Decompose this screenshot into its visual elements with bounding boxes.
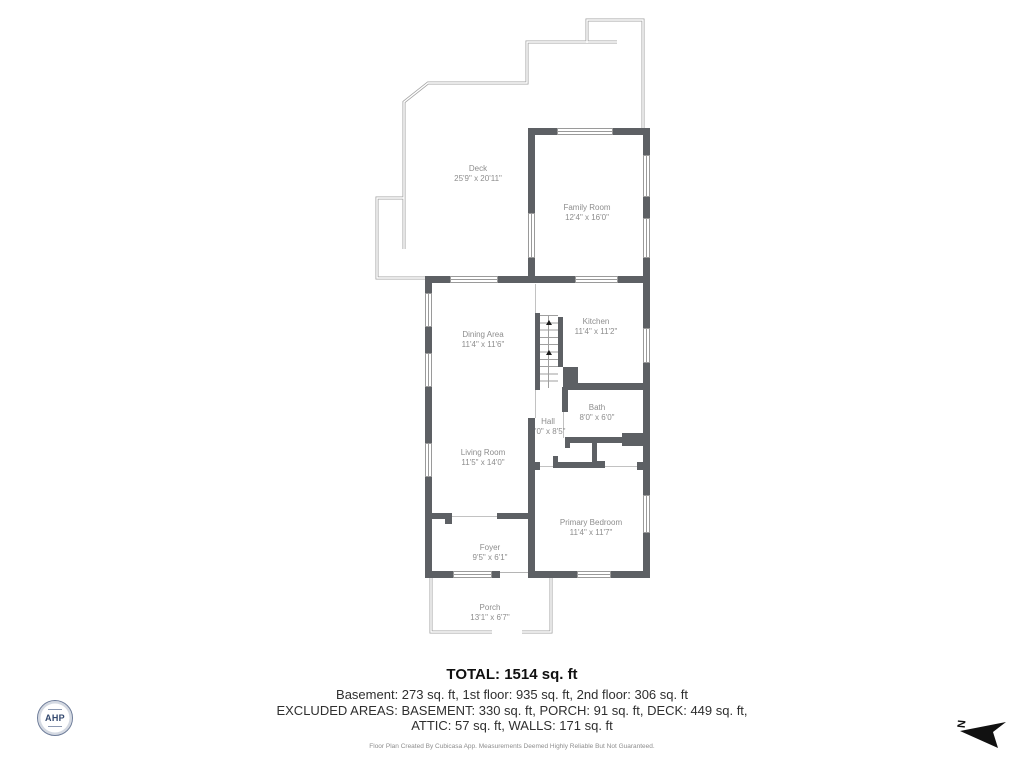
room-dims: 12'4" x 16'0" xyxy=(563,213,610,223)
room-label-deck: Deck 25'9" x 20'11" xyxy=(454,164,502,184)
wall-door-jamb xyxy=(445,513,452,524)
room-name: Dining Area xyxy=(462,330,505,340)
window xyxy=(577,571,611,578)
room-dims: 11'4" x 11'2" xyxy=(575,327,618,337)
window xyxy=(425,293,432,327)
room-separator-line xyxy=(535,284,536,313)
room-name: Kitchen xyxy=(575,317,618,327)
room-label-primary-bedroom: Primary Bedroom 11'4" x 11'7" xyxy=(560,518,622,538)
room-name: Primary Bedroom xyxy=(560,518,622,528)
wall xyxy=(553,462,597,468)
window xyxy=(425,353,432,387)
room-label-bath: Bath 8'0" x 6'0" xyxy=(580,403,615,423)
room-name: Foyer xyxy=(473,543,508,553)
wall xyxy=(425,513,445,519)
wall xyxy=(562,387,568,412)
room-dims: 25'9" x 20'11" xyxy=(454,174,502,184)
wall-nub xyxy=(534,462,540,470)
north-arrow-icon: N xyxy=(948,708,1010,758)
room-dims: 9'5" x 6'1" xyxy=(473,553,508,563)
window xyxy=(450,276,498,283)
excluded-areas-text: EXCLUDED AREAS: BASEMENT: 330 sq. ft, PO… xyxy=(0,703,1024,719)
room-label-dining-area: Dining Area 11'4" x 11'6" xyxy=(462,330,505,350)
room-label-foyer: Foyer 9'5" x 6'1" xyxy=(473,543,508,563)
wall xyxy=(535,313,540,390)
window xyxy=(425,443,432,477)
wall-door-jamb xyxy=(492,571,500,578)
stair-up-arrow-icon xyxy=(546,350,552,355)
window xyxy=(643,328,650,363)
room-dims: 11'4" x 11'7" xyxy=(560,528,622,538)
room-label-porch: Porch 13'1" x 6'7" xyxy=(470,603,509,623)
deck-porch-railing-lines xyxy=(0,0,1024,768)
window xyxy=(575,276,618,283)
window xyxy=(643,218,650,258)
window xyxy=(643,495,650,533)
floor-plan-page: Deck 25'9" x 20'11" Family Room 12'4" x … xyxy=(0,0,1024,768)
window xyxy=(528,213,535,258)
room-dims: 3'0" x 8'5" xyxy=(531,427,566,437)
area-summary: TOTAL: 1514 sq. ft Basement: 273 sq. ft,… xyxy=(0,666,1024,734)
wall xyxy=(497,513,535,519)
room-name: Porch xyxy=(470,603,509,613)
room-name: Living Room xyxy=(461,448,505,458)
ahp-logo-text: AHP xyxy=(45,713,65,723)
wall-nub xyxy=(597,461,605,468)
floor-areas-text: Basement: 273 sq. ft, 1st floor: 935 sq.… xyxy=(0,687,1024,703)
north-label: N xyxy=(954,719,967,728)
room-name: Bath xyxy=(580,403,615,413)
room-name: Hall xyxy=(531,417,566,427)
wall-nub xyxy=(637,462,643,470)
wall xyxy=(622,433,643,446)
wall xyxy=(558,317,563,367)
staircase xyxy=(540,315,558,388)
window xyxy=(453,571,492,578)
room-dims: 8'0" x 6'0" xyxy=(580,413,615,423)
room-label-hall: Hall 3'0" x 8'5" xyxy=(531,417,566,437)
wall xyxy=(565,437,570,448)
window xyxy=(643,155,650,197)
room-dims: 13'1" x 6'7" xyxy=(470,613,509,623)
window xyxy=(557,128,613,135)
excluded-areas-text: ATTIC: 57 sq. ft, WALLS: 171 sq. ft xyxy=(0,718,1024,734)
room-label-family-room: Family Room 12'4" x 16'0" xyxy=(563,203,610,223)
ahp-logo: AHP xyxy=(37,700,75,738)
room-name: Family Room xyxy=(563,203,610,213)
disclaimer-text: Floor Plan Created By Cubicasa App. Meas… xyxy=(0,743,1024,750)
room-label-kitchen: Kitchen 11'4" x 11'2" xyxy=(575,317,618,337)
room-dims: 11'5" x 14'0" xyxy=(461,458,505,468)
room-dims: 11'4" x 11'6" xyxy=(462,340,505,350)
stair-up-arrow-icon xyxy=(546,320,552,325)
wall xyxy=(528,418,535,578)
ahp-logo-circle: AHP xyxy=(37,700,73,736)
wall xyxy=(553,456,558,468)
door-opening-line xyxy=(500,572,528,573)
door-opening-line xyxy=(452,516,497,517)
room-label-living-room: Living Room 11'5" x 14'0" xyxy=(461,448,505,468)
room-separator-line xyxy=(535,390,536,418)
total-area-text: TOTAL: 1514 sq. ft xyxy=(0,666,1024,683)
room-name: Deck xyxy=(454,164,502,174)
wall xyxy=(563,383,650,390)
